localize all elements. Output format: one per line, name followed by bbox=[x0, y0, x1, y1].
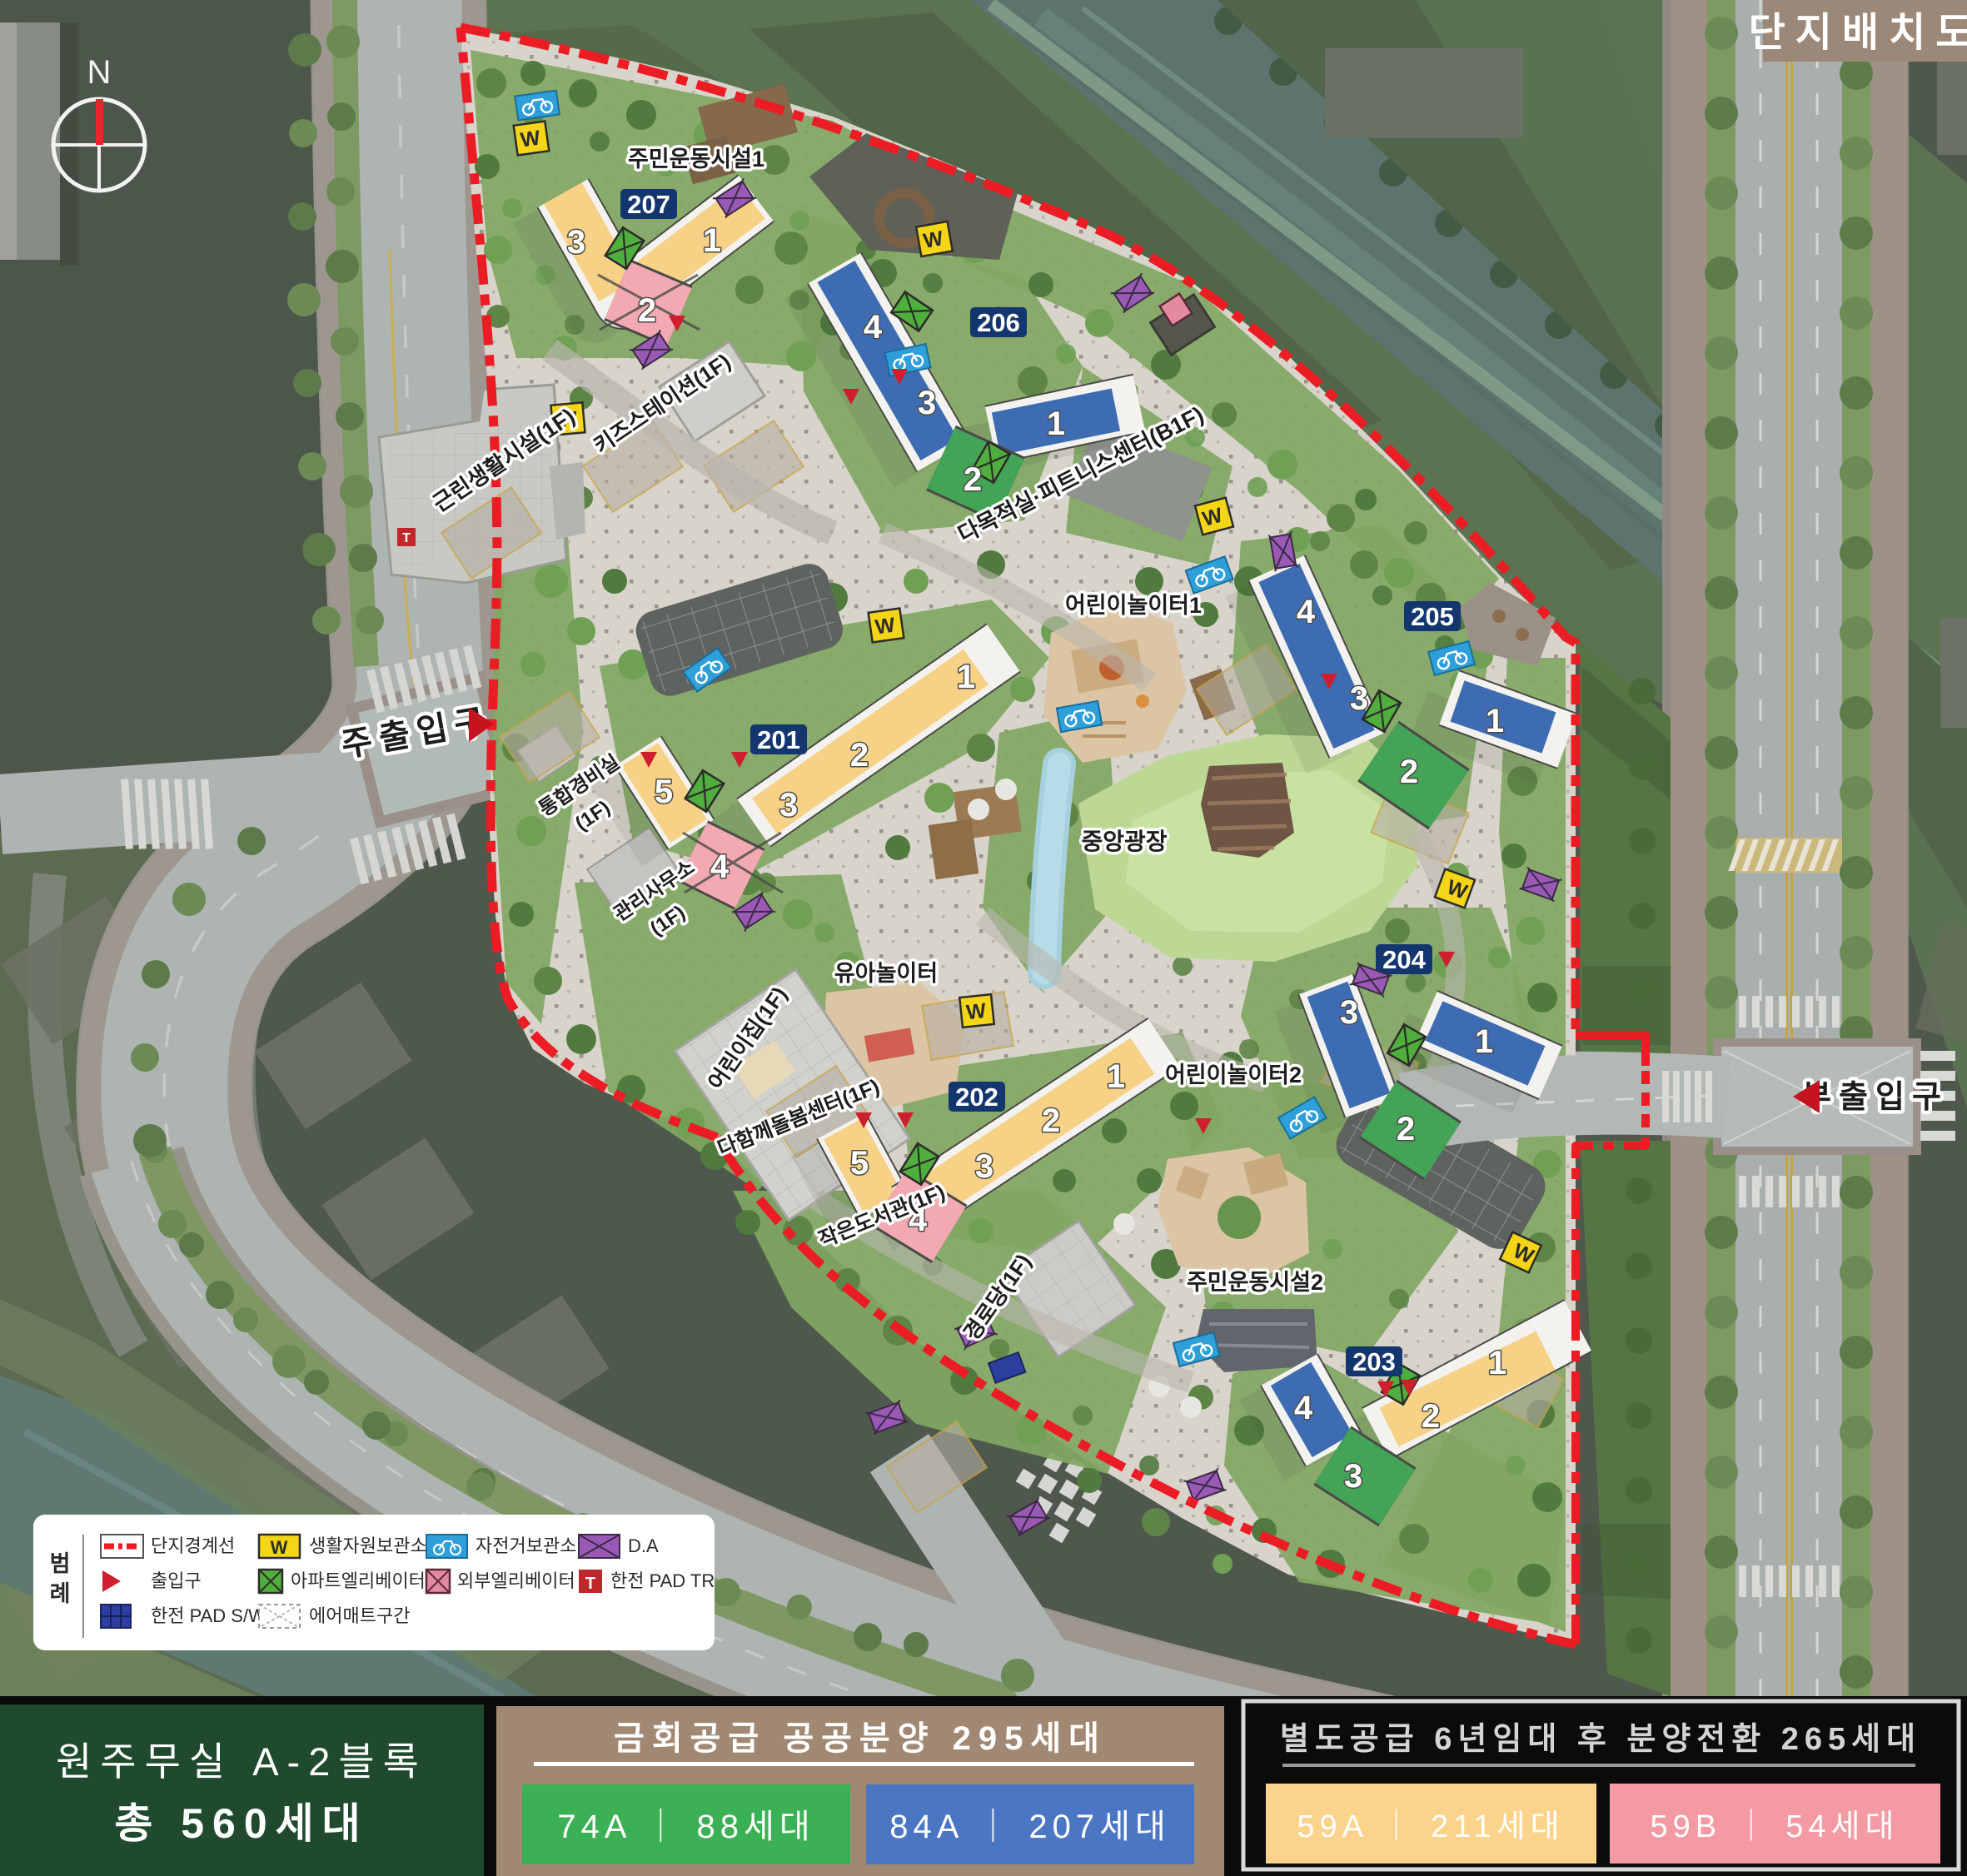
svg-text:에어매트구간: 에어매트구간 bbox=[309, 1605, 410, 1626]
svg-text:W: W bbox=[874, 614, 897, 639]
svg-text:1: 1 bbox=[957, 659, 975, 695]
svg-text:206: 206 bbox=[977, 308, 1020, 337]
svg-text:D.A: D.A bbox=[628, 1535, 659, 1556]
svg-text:출입구: 출입구 bbox=[151, 1570, 202, 1591]
svg-text:단지배치도: 단지배치도 bbox=[1749, 11, 1967, 55]
svg-text:1: 1 bbox=[1047, 406, 1065, 442]
svg-text:4: 4 bbox=[1294, 1390, 1313, 1426]
svg-text:203: 203 bbox=[1352, 1347, 1396, 1376]
svg-text:2: 2 bbox=[850, 737, 869, 774]
svg-text:3: 3 bbox=[567, 224, 585, 261]
svg-text:W: W bbox=[965, 999, 988, 1024]
svg-text:2: 2 bbox=[1397, 1111, 1415, 1147]
svg-text:1: 1 bbox=[1486, 703, 1504, 739]
svg-text:T: T bbox=[585, 1575, 595, 1593]
svg-text:5: 5 bbox=[655, 774, 673, 810]
svg-text:1: 1 bbox=[703, 222, 721, 259]
svg-text:3: 3 bbox=[975, 1148, 993, 1185]
svg-text:3: 3 bbox=[779, 787, 798, 824]
svg-text:2: 2 bbox=[1400, 754, 1418, 790]
svg-text:외부엘리베이터: 외부엘리베이터 bbox=[457, 1570, 575, 1591]
svg-text:202: 202 bbox=[955, 1082, 998, 1112]
svg-text:2: 2 bbox=[1042, 1102, 1060, 1139]
svg-text:1: 1 bbox=[1107, 1058, 1125, 1095]
svg-text:주민운동시설2: 주민운동시설2 bbox=[1187, 1270, 1323, 1295]
svg-text:2: 2 bbox=[964, 461, 982, 498]
svg-text:유아놀이터: 유아놀이터 bbox=[834, 961, 938, 986]
svg-text:례: 례 bbox=[50, 1581, 71, 1606]
svg-text:T: T bbox=[402, 531, 411, 545]
svg-text:2: 2 bbox=[1422, 1398, 1440, 1435]
svg-text:한전 PAD S/W: 한전 PAD S/W bbox=[151, 1605, 266, 1626]
svg-text:207: 207 bbox=[627, 190, 670, 219]
svg-text:1: 1 bbox=[1475, 1023, 1493, 1060]
svg-text:자전거보관소: 자전거보관소 bbox=[476, 1535, 576, 1556]
svg-text:어린이놀이터2: 어린이놀이터2 bbox=[1165, 1062, 1302, 1087]
svg-text:부출입구: 부출입구 bbox=[1802, 1080, 1949, 1115]
svg-text:N: N bbox=[87, 54, 112, 91]
svg-text:4: 4 bbox=[1297, 594, 1316, 630]
svg-text:3: 3 bbox=[1350, 680, 1368, 717]
svg-text:4: 4 bbox=[864, 309, 883, 346]
svg-text:1: 1 bbox=[1488, 1345, 1506, 1381]
svg-text:84A ｜ 207세대: 84A ｜ 207세대 bbox=[889, 1809, 1171, 1845]
svg-text:3: 3 bbox=[1344, 1458, 1362, 1495]
svg-text:어린이놀이터1: 어린이놀이터1 bbox=[1065, 593, 1202, 618]
svg-text:74A ｜ 88세대: 74A ｜ 88세대 bbox=[557, 1809, 814, 1845]
svg-text:59A ｜ 211세대: 59A ｜ 211세대 bbox=[1297, 1809, 1564, 1844]
svg-text:한전 PAD TR: 한전 PAD TR bbox=[610, 1570, 715, 1591]
svg-text:205: 205 bbox=[1411, 602, 1454, 631]
svg-text:총 560세대: 총 560세대 bbox=[114, 1800, 368, 1847]
svg-text:W: W bbox=[271, 1537, 288, 1558]
svg-text:W: W bbox=[519, 127, 542, 152]
svg-text:204: 204 bbox=[1382, 945, 1426, 974]
svg-text:2: 2 bbox=[638, 292, 656, 329]
svg-text:59B ｜ 54세대: 59B ｜ 54세대 bbox=[1651, 1809, 1900, 1844]
svg-text:범: 범 bbox=[50, 1551, 71, 1576]
svg-text:원주무실 A-2블록: 원주무실 A-2블록 bbox=[56, 1739, 427, 1784]
svg-text:주민운동시설1: 주민운동시설1 bbox=[628, 147, 764, 172]
svg-text:4: 4 bbox=[710, 848, 730, 885]
svg-text:단지경계선: 단지경계선 bbox=[151, 1535, 235, 1556]
svg-text:3: 3 bbox=[1340, 994, 1358, 1031]
svg-text:금회공급 공공분양 295세대: 금회공급 공공분양 295세대 bbox=[614, 1720, 1107, 1757]
svg-text:생활자원보관소: 생활자원보관소 bbox=[309, 1535, 427, 1556]
svg-text:3: 3 bbox=[918, 385, 936, 421]
svg-text:201: 201 bbox=[757, 725, 800, 754]
svg-text:아파트엘리베이터: 아파트엘리베이터 bbox=[291, 1570, 426, 1591]
svg-text:중앙광장: 중앙광장 bbox=[1081, 829, 1167, 854]
svg-text:5: 5 bbox=[850, 1145, 869, 1182]
svg-text:별도공급 6년임대 후 분양전환 265세대: 별도공급 6년임대 후 분양전환 265세대 bbox=[1280, 1722, 1921, 1757]
